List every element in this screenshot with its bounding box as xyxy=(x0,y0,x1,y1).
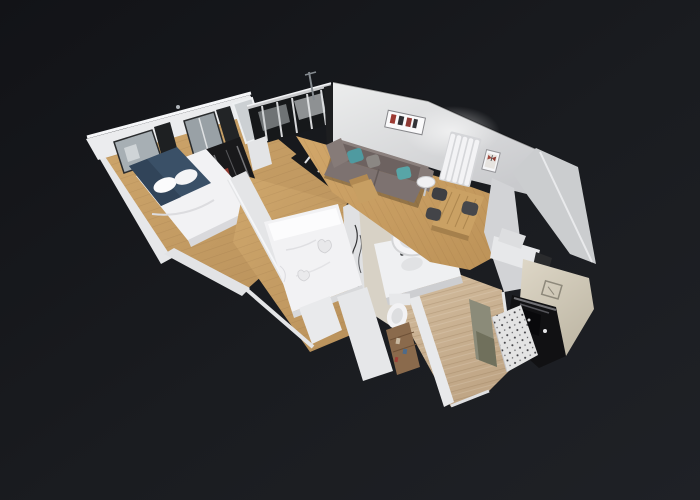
screenshot-root xyxy=(0,0,700,500)
machine-button xyxy=(528,319,531,322)
white-cup xyxy=(543,329,547,333)
apartment-3d-viewport[interactable] xyxy=(0,0,700,500)
scan-dot-artifact xyxy=(176,105,180,109)
